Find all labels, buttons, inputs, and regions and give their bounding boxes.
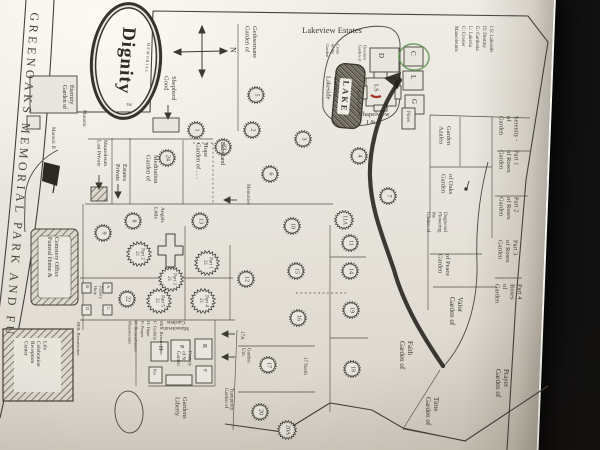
private-estates: Private Estates: [113, 164, 127, 181]
section-marker-2: 2: [249, 129, 256, 132]
good-shepherd: Good Shepherd: [162, 76, 177, 101]
pines-road: Pines: [404, 111, 410, 122]
section-marker-21-part2: 21 Part 2: [134, 248, 145, 260]
section-marker-5: 5: [253, 94, 260, 97]
section-17a: 17A: [238, 331, 244, 340]
section-markers: [95, 87, 397, 440]
garden-roses-part3: Garden of Roses Part 3: [496, 240, 519, 263]
section-marker-21-part1: 21 Part 1: [202, 257, 213, 269]
section-marker-10: 10: [289, 223, 296, 229]
section-marker-9: 9: [100, 232, 107, 235]
compass-icon: [174, 26, 227, 77]
azalea-garden: Azalea Garden: [437, 126, 452, 145]
section-marker-4: 4: [356, 155, 363, 158]
section-marker-15: 15: [293, 268, 300, 274]
bldg-f-letter: F: [201, 369, 207, 372]
holy-family: Holy Family: [93, 286, 103, 299]
trademark-symbol: ™: [126, 103, 132, 109]
crucifix-feature: [158, 234, 183, 267]
mausoleum-l-box: [403, 71, 423, 90]
garden-tranquility: Garden of Tranquility: [222, 388, 234, 410]
section-marker-8: 8: [130, 220, 137, 223]
section-marker-12: 12: [243, 276, 250, 282]
plot-b: B: [85, 285, 90, 288]
bldg-r-letter: R: [200, 344, 207, 348]
section-marker-21-part3: 21 Part 3: [166, 273, 177, 285]
garden-hope: Garden of . . . Hope: [194, 143, 209, 179]
section-marker-19: 19: [348, 307, 355, 313]
bldg-res-letter: Res: [152, 369, 157, 375]
garden-prayer: Garden of Prayer: [494, 369, 510, 397]
oval-feature: [114, 390, 145, 434]
bldg-g-letter: G: [410, 99, 418, 104]
tree-glyph: [464, 181, 469, 191]
flag-icon: [42, 162, 60, 193]
garden-st-francis: Garden of St. Francis: [174, 351, 191, 366]
garden-peace: Garden of Peace: [436, 254, 451, 276]
garden-roses-part4: Garden of Roses Part 4: [493, 284, 523, 303]
logo-sub-text: MEMORIAL: [144, 42, 151, 74]
garden-of-the-cross: Garden of the Cross: [325, 44, 341, 57]
masonic-ii: Masonic II: [49, 127, 55, 149]
garden-time: Garden of Time: [424, 397, 440, 425]
last-private-mausoleum: Last Private Mausoleum: [95, 140, 108, 166]
section-marker-20: 20: [257, 409, 264, 415]
lakeside-rooms: Lakeside Rooms: [356, 86, 361, 113]
section-marker-1: 1: [193, 129, 200, 132]
funeral-home-office: Funeral Home & Cemetery Office: [45, 237, 59, 278]
life-celebration-center: Life Celebration Reception Center: [22, 341, 48, 367]
garden-valor: Garden of Valor: [448, 297, 464, 325]
photo-of-cemetery-map: GREENOAKS MEMORIAL PARK AND FUGarden of …: [0, 0, 600, 450]
lakeview-estates: Lakeview Estates: [296, 26, 368, 36]
urn-garden: Urn Garden: [239, 348, 251, 363]
garden-gethsemane: Garden of Gethsemane: [243, 26, 258, 58]
garden-eternity: Garden of Eternity: [60, 85, 74, 109]
logo-brand-text: Dignity: [113, 27, 140, 96]
section-marker-18: 18: [349, 366, 356, 372]
legend-lakeview: Mausoleums C: Crosier L: Lakeria G: Gard…: [452, 26, 494, 53]
garden-devotion: Garden of Devotion: [357, 45, 366, 61]
bldg-ls-letter: LS: [372, 84, 380, 92]
map-content: GREENOAKS MEMORIAL PARK AND FUGarden of …: [0, 0, 600, 450]
section-17-north: 17 North: [301, 357, 307, 375]
garden-roses-part2: Garden of Roses Part 2: [497, 197, 520, 220]
section-marker-7: 7: [385, 195, 392, 198]
section-marker-11a: 11A: [341, 215, 348, 225]
bldg-d-letter: D: [377, 53, 385, 58]
mausoleum-c-box: [404, 47, 423, 66]
section-marker-23: 23: [220, 144, 227, 150]
section-marker-17: 17: [265, 362, 272, 368]
garden-serenity: Garden of Serenity -: [497, 116, 520, 141]
mausoleum-d-building: [370, 48, 399, 72]
dashed-boundaries: [193, 143, 346, 293]
lakeside-gardens: Lakeside Gardens: [324, 76, 339, 99]
garden-flowering-dogwood: Garden of the Flowering Dogwood: [424, 212, 447, 233]
plot-d: D: [85, 307, 90, 310]
bldg-c-letter: C: [409, 51, 417, 56]
section-marker-22: 22: [124, 296, 131, 302]
compass-n: N: [228, 47, 237, 53]
section-marker-21-part4: 21 Part 4: [198, 295, 209, 307]
good-shepherd-building: [153, 118, 179, 132]
section-marker-11: 11: [347, 240, 354, 246]
bldg-p-letter: P: [177, 345, 184, 348]
masonic: Masonic: [80, 110, 86, 127]
bldg-l-letter: L: [409, 75, 417, 79]
section-marker-21-part5: 21 Part 5: [154, 295, 165, 307]
garden-roses-part1: Garden of Roses Part 1: [497, 150, 520, 173]
chapelview: Chapelview I & II: [354, 111, 394, 126]
res-note: RES: Resurrection: [76, 322, 81, 356]
garden-oaks: Garden of Oaks: [439, 174, 454, 194]
section-marker-20a: 20A: [284, 425, 291, 435]
section-marker-16: 16: [295, 315, 302, 321]
little-angels: Little Angels: [152, 207, 165, 223]
memories-road: Memories: [244, 184, 250, 204]
garden-faith: Garden of Faith: [398, 341, 414, 369]
legend-south: Mausoleums R: Remembrance P: Prayer H: H…: [126, 321, 164, 355]
section-marker-14: 14: [347, 268, 354, 274]
plot-a: A: [106, 285, 111, 288]
section-marker-24: 24: [164, 155, 171, 161]
section-marker-13: 13: [197, 218, 204, 224]
garden-meditation: Garden of Meditation: [144, 155, 159, 184]
mausoleum-r-box: [195, 339, 212, 359]
section-marker-6: 6: [267, 173, 274, 176]
section-marker-3: 3: [300, 138, 307, 141]
liberty-gardens: Liberty Gardens: [173, 397, 188, 419]
plot-c: C: [106, 307, 111, 310]
